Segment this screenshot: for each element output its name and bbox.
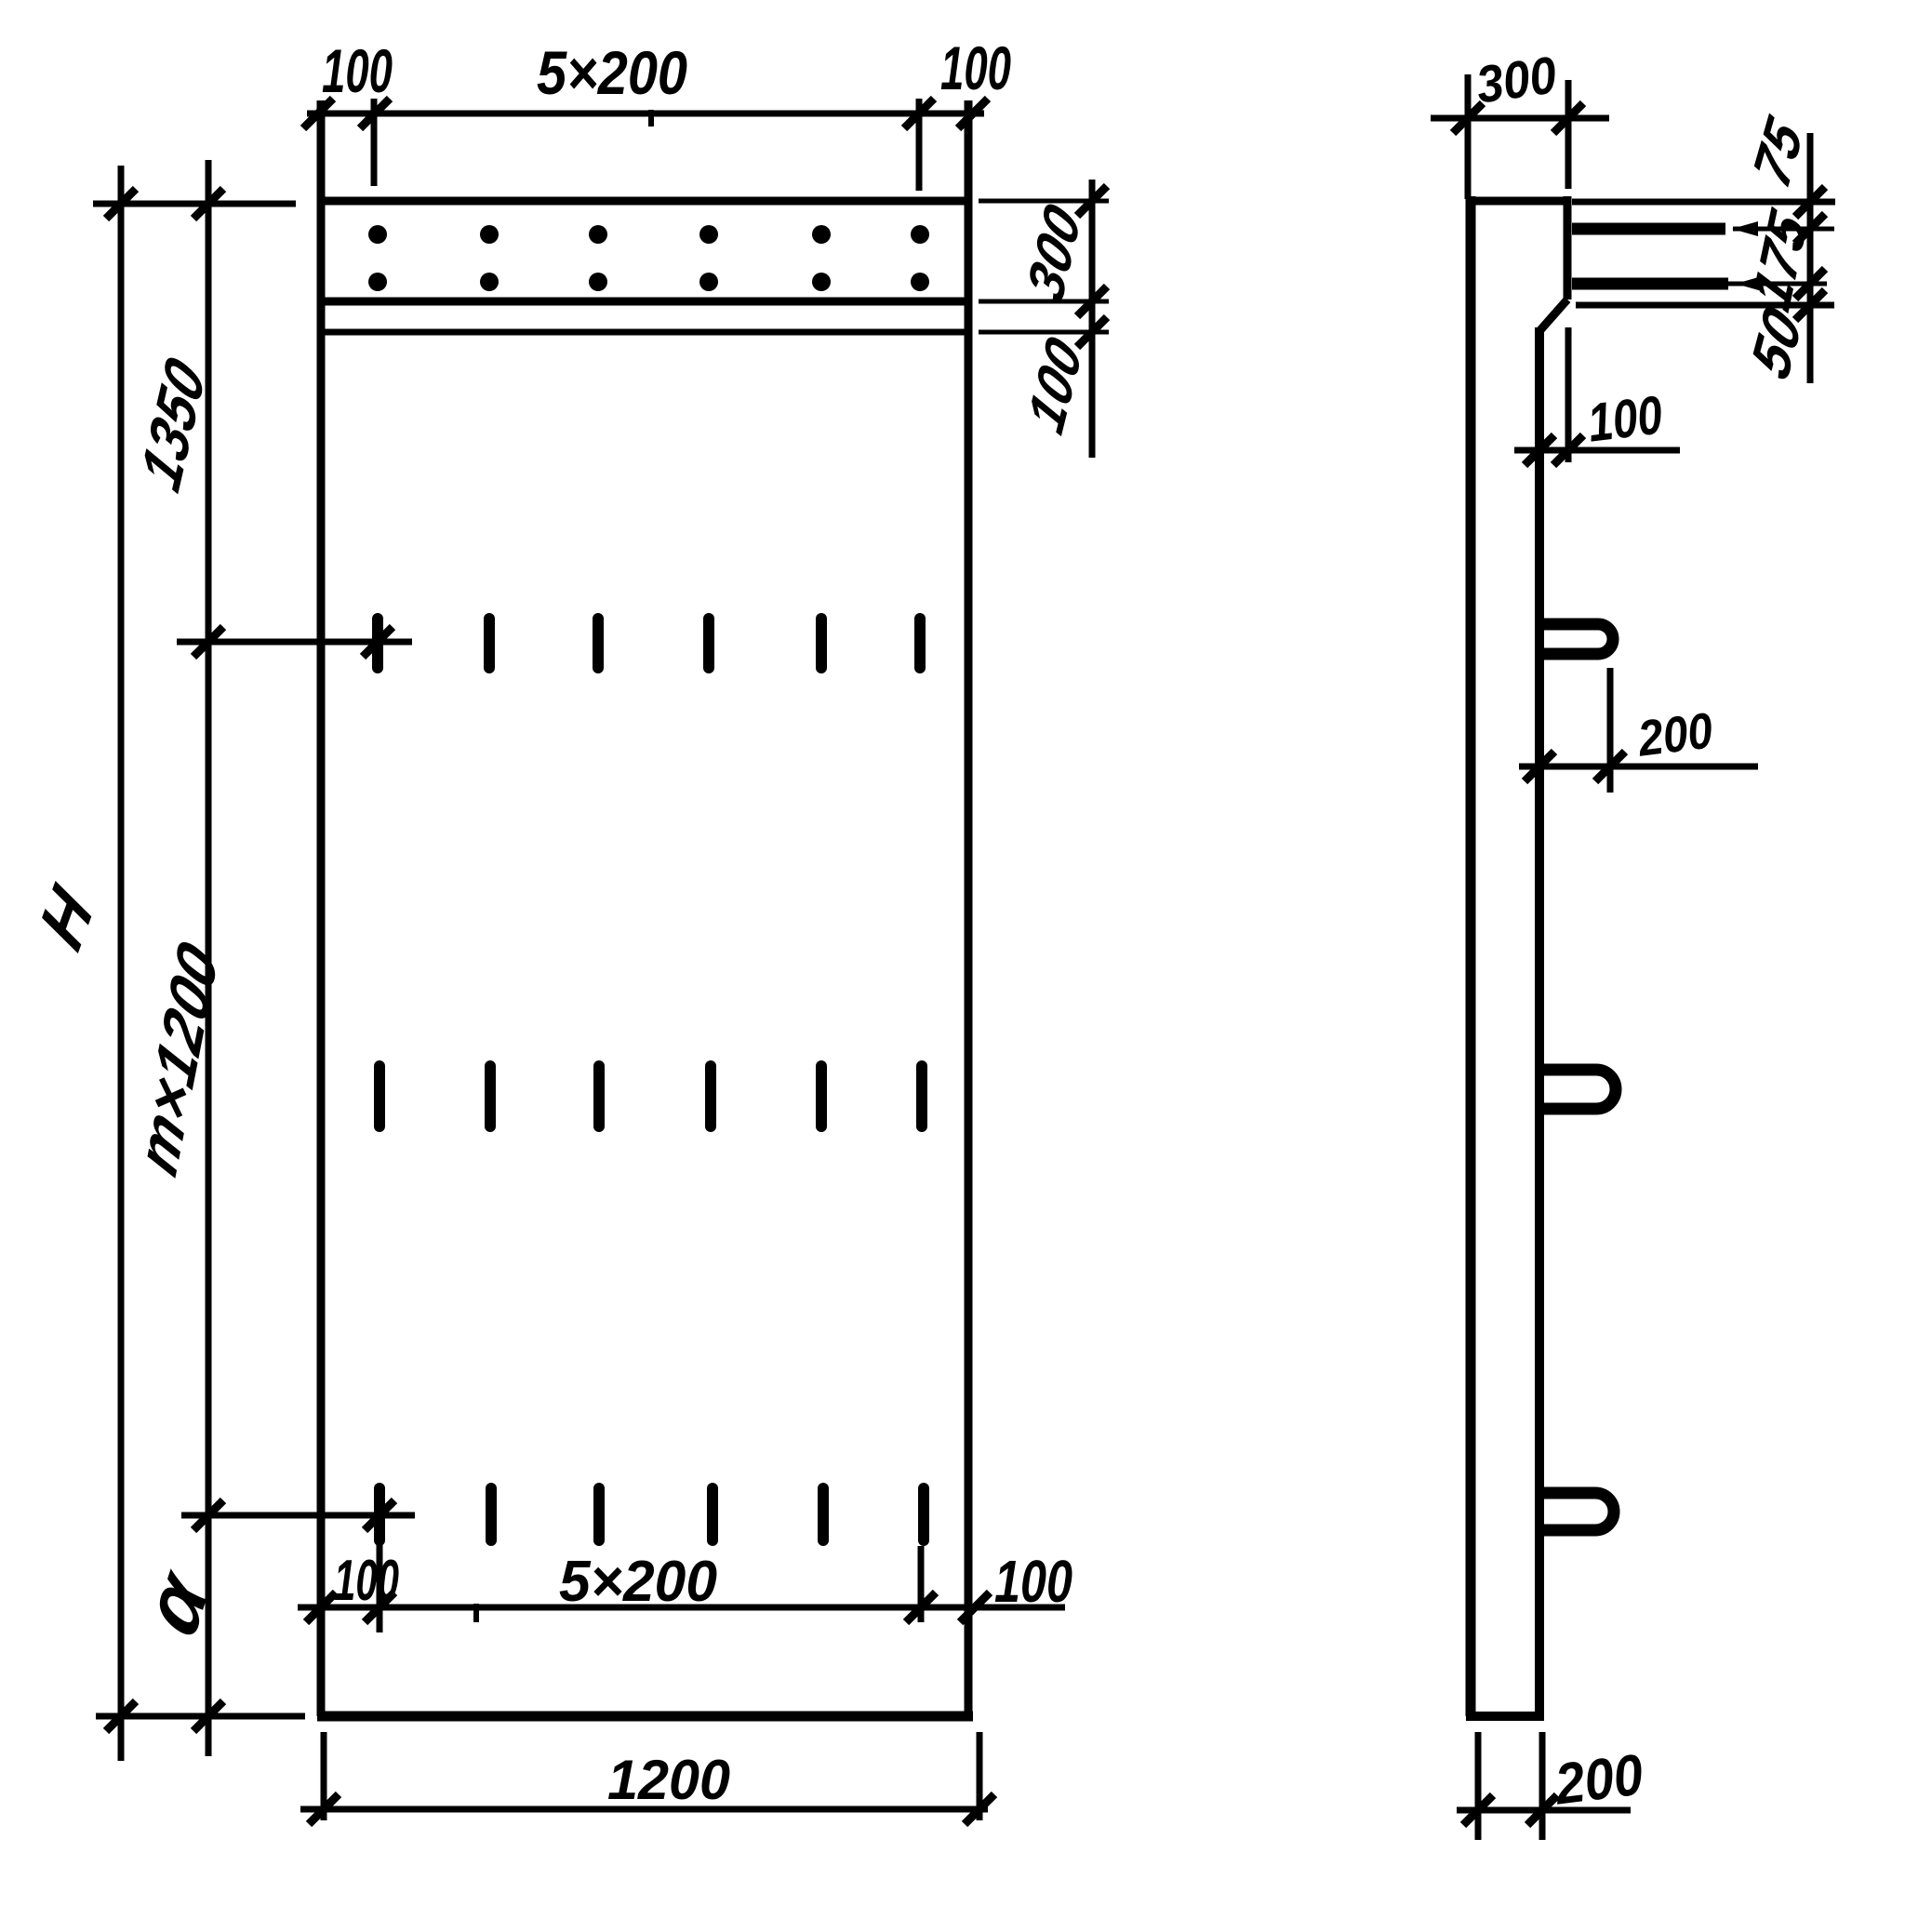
svg-text:200: 200 [1634,702,1716,766]
svg-text:100: 100 [994,1548,1072,1615]
svg-text:100: 100 [322,36,393,105]
svg-text:200: 200 [1551,1743,1646,1818]
svg-text:300: 300 [1472,45,1560,113]
svg-text:100: 100 [1584,384,1665,453]
svg-text:100: 100 [940,33,1011,102]
svg-text:1200: 1200 [607,1749,730,1811]
svg-text:100: 100 [334,1549,399,1613]
svg-text:5×200: 5×200 [537,38,687,107]
svg-text:5×200: 5×200 [559,1550,717,1614]
